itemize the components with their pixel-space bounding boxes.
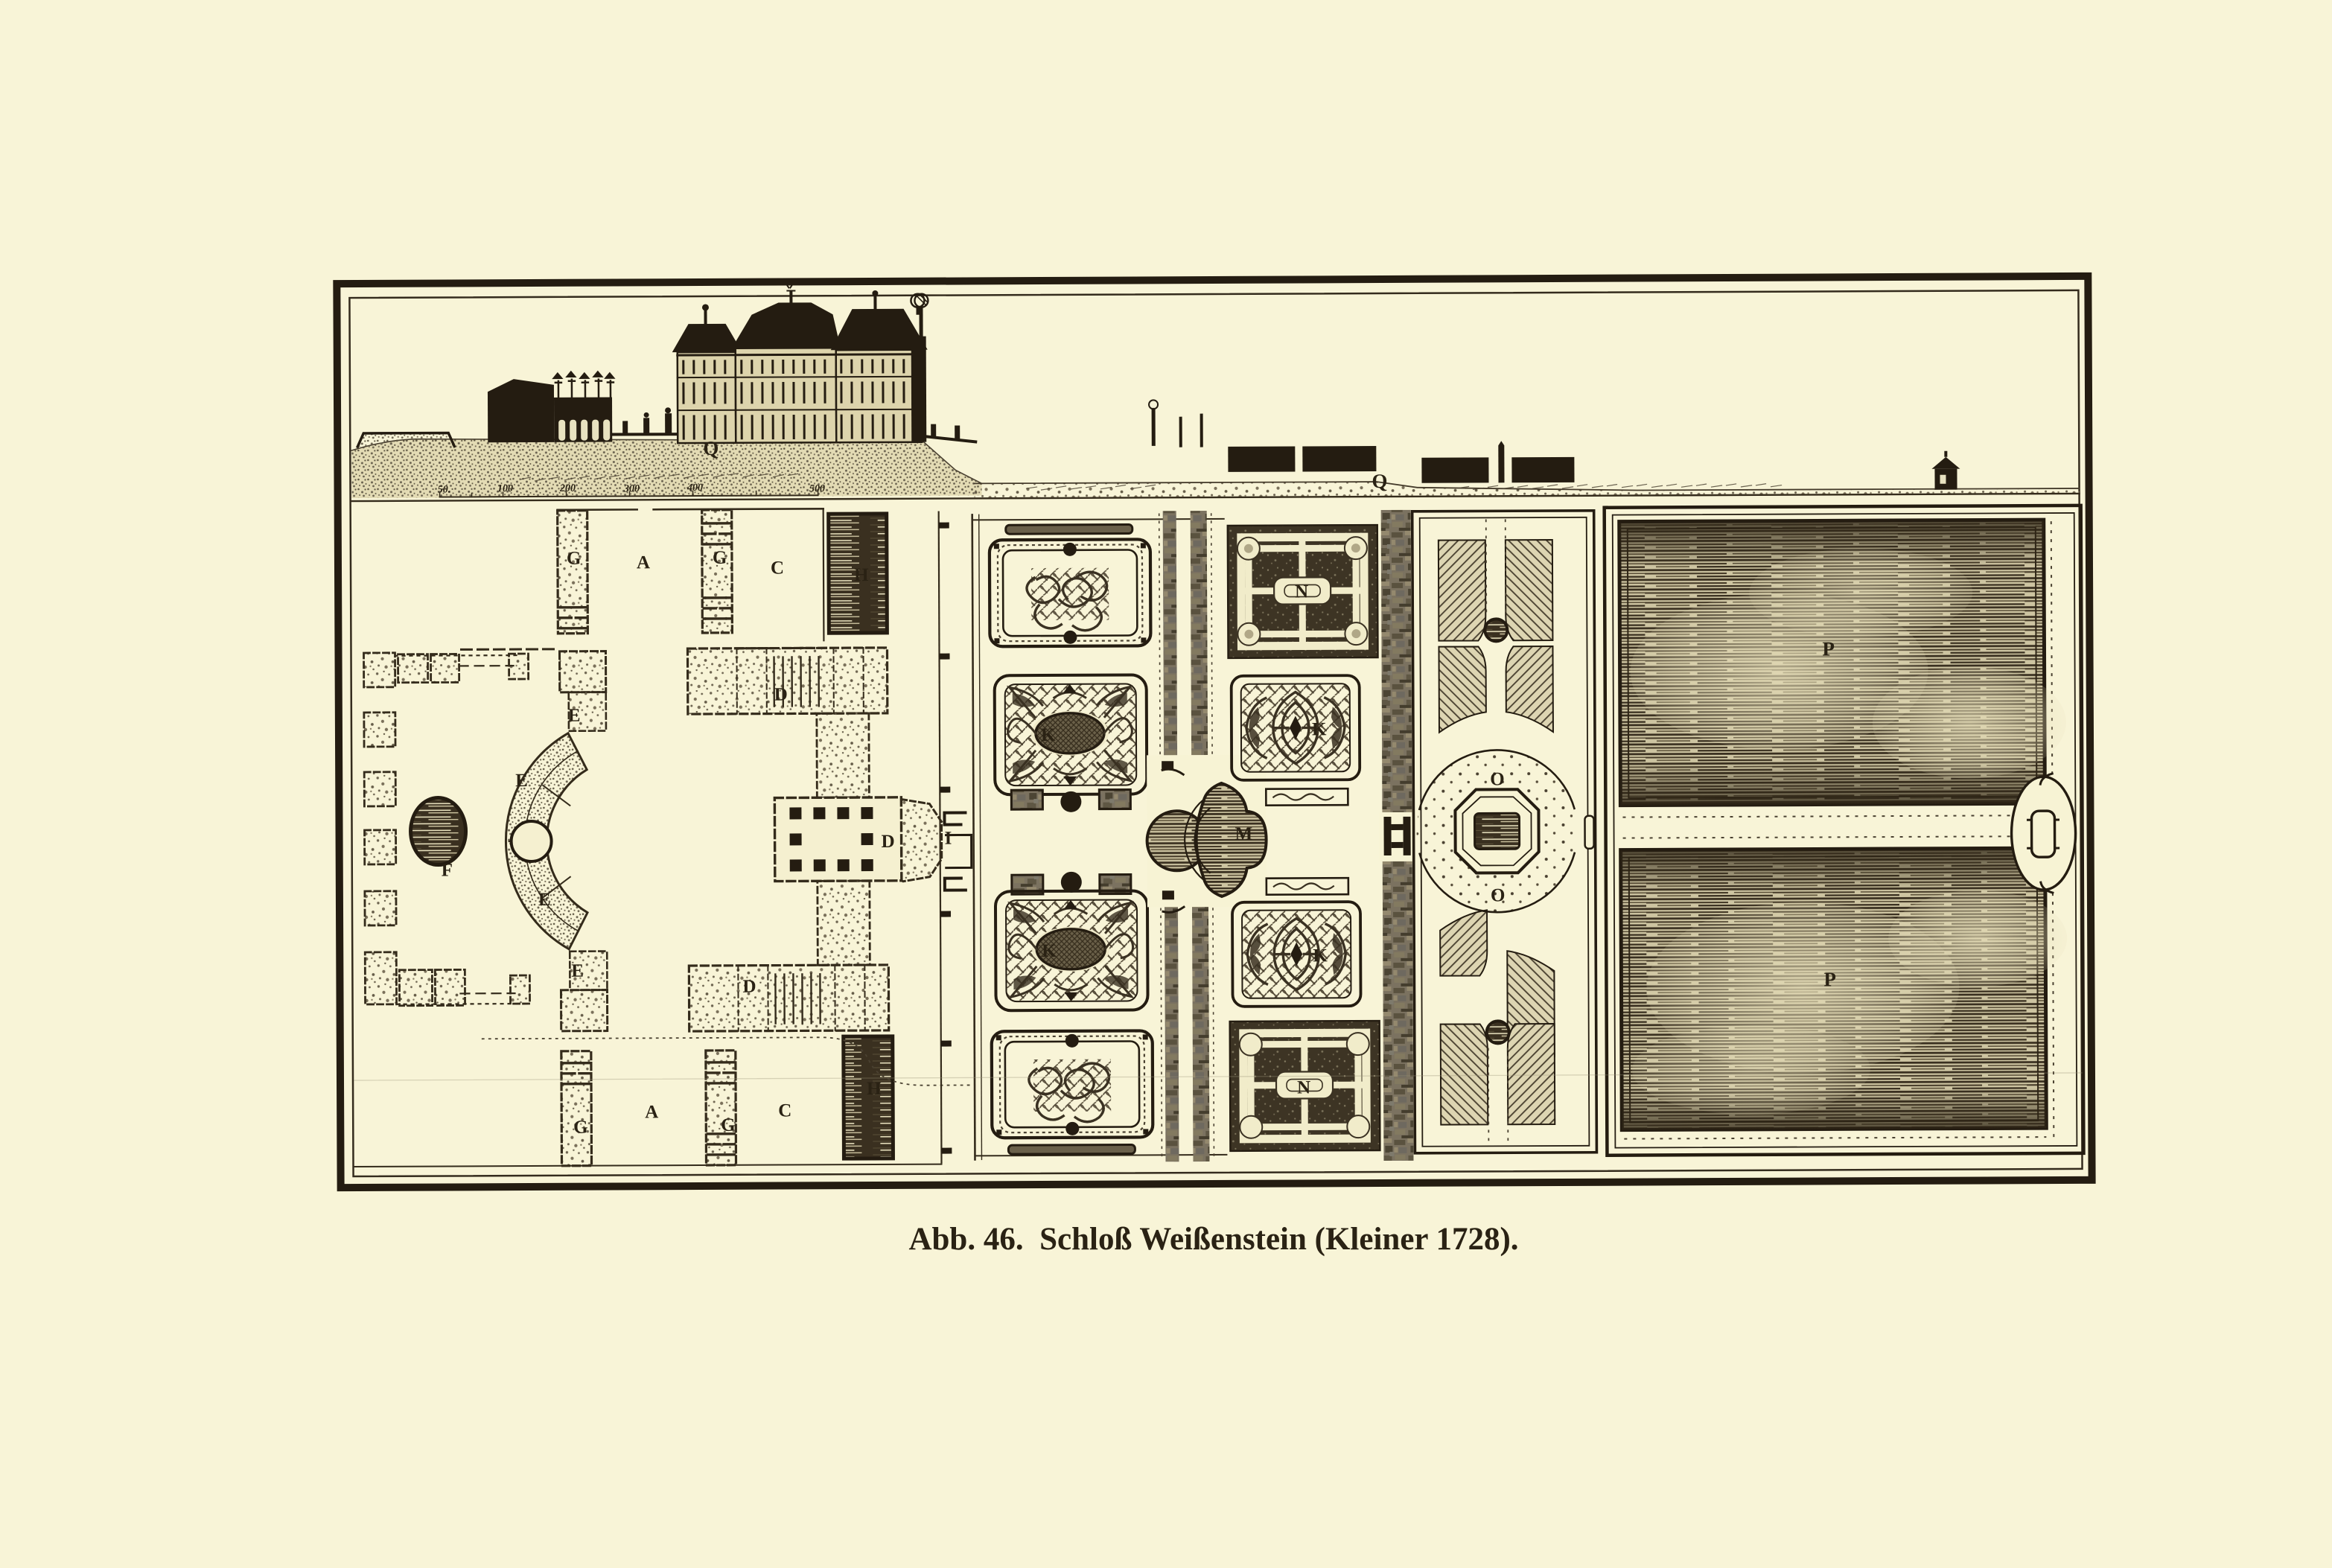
- svg-text:G: G: [567, 549, 582, 569]
- svg-text:100: 100: [497, 483, 513, 494]
- svg-text:200: 200: [559, 483, 576, 494]
- svg-text:A: A: [637, 552, 650, 573]
- svg-text:P: P: [1823, 968, 1836, 990]
- svg-text:O: O: [1490, 769, 1505, 789]
- svg-text:50.: 50.: [438, 484, 451, 495]
- svg-text:N: N: [1297, 1077, 1310, 1097]
- svg-text:K: K: [1313, 946, 1328, 966]
- svg-text:K: K: [1312, 719, 1327, 739]
- svg-text:H: H: [867, 1079, 882, 1099]
- svg-text:500: 500: [809, 483, 825, 494]
- svg-text:C: C: [778, 1100, 791, 1121]
- svg-text:G: G: [721, 1115, 736, 1135]
- svg-text:G: G: [573, 1118, 588, 1138]
- svg-text:I: I: [945, 829, 952, 849]
- svg-text:E: E: [515, 771, 528, 791]
- svg-text:A: A: [645, 1102, 658, 1122]
- svg-text:Q: Q: [1372, 470, 1387, 492]
- svg-text:Abb. 46. Schloß Weißenstein (: Abb. 46. Schloß Weißenstein (Kleiner 172…: [908, 1222, 1518, 1257]
- svg-text:D: D: [774, 684, 788, 704]
- svg-text:F: F: [442, 860, 453, 880]
- svg-text:E: E: [538, 890, 551, 910]
- svg-text:C: C: [771, 558, 784, 579]
- svg-text:400: 400: [686, 482, 703, 494]
- svg-text:E: E: [568, 706, 581, 726]
- svg-text:O: O: [1491, 885, 1506, 905]
- svg-text:H: H: [854, 565, 869, 585]
- svg-text:K: K: [1042, 941, 1057, 961]
- svg-text:K: K: [1041, 725, 1056, 745]
- svg-text:Q: Q: [703, 437, 719, 459]
- svg-text:G: G: [713, 548, 727, 568]
- svg-text:D: D: [742, 977, 756, 997]
- svg-text:P: P: [1822, 637, 1835, 660]
- svg-text:N: N: [1295, 581, 1308, 602]
- svg-text:M: M: [1235, 824, 1253, 844]
- svg-text:E: E: [571, 961, 584, 981]
- svg-text:300: 300: [623, 483, 640, 494]
- svg-text:D: D: [882, 832, 895, 852]
